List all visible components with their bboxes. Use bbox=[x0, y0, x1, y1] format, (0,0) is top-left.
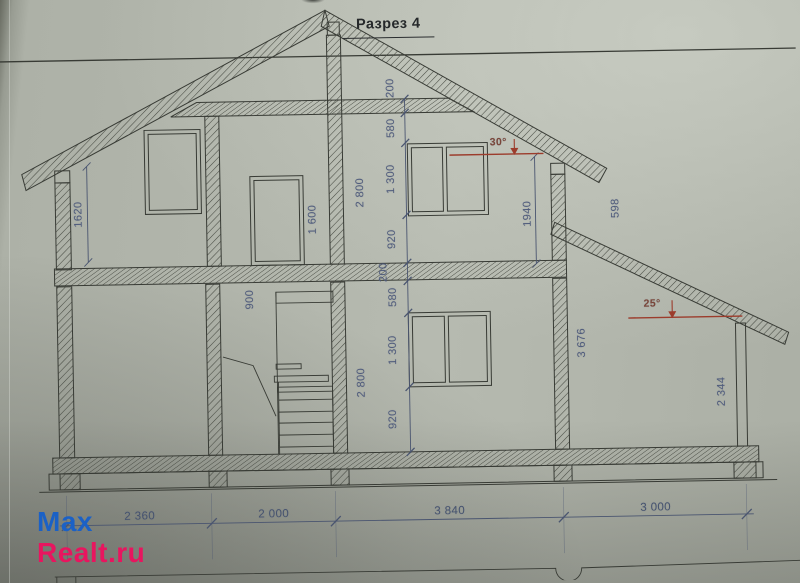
photo-of-section-drawing: Разрез 4 1620 200 580 1 300 920 2 800 20… bbox=[0, 0, 800, 583]
dim-porch-post: 2 344 bbox=[714, 356, 729, 426]
angle-main-roof: 30° bbox=[481, 135, 515, 150]
dim-ground-window: 1 300 bbox=[385, 315, 400, 385]
drawing-title: Разрез 4 bbox=[342, 15, 434, 39]
porch-post bbox=[735, 323, 747, 446]
dim-right-wall: 3 676 bbox=[574, 308, 589, 378]
dimension-lines bbox=[52, 89, 754, 562]
ground-line bbox=[39, 479, 777, 492]
ground-window bbox=[408, 311, 491, 386]
plan-dim-2: 2 000 bbox=[239, 507, 309, 522]
walls bbox=[52, 15, 747, 458]
angle-porch-roof: 25° bbox=[635, 296, 669, 311]
staircase bbox=[222, 291, 336, 455]
collar-beam bbox=[171, 98, 474, 117]
roof bbox=[19, 2, 789, 357]
watermark: Max Realt.ru bbox=[37, 506, 145, 568]
dim-left-knee-wall: 1620 bbox=[71, 179, 86, 249]
attic-right-window bbox=[407, 142, 488, 215]
section-line-art bbox=[0, 0, 800, 583]
floor-slabs bbox=[35, 256, 777, 492]
dim-ground-sill: 920 bbox=[385, 384, 400, 454]
plan-dim-3: 3 840 bbox=[415, 504, 485, 519]
dim-door-height: 1 600 bbox=[305, 184, 320, 254]
dim-right-upper: 1940 bbox=[520, 179, 535, 249]
stair-handrail bbox=[223, 356, 276, 417]
attic-door bbox=[250, 176, 305, 266]
watermark-line1: Max bbox=[37, 506, 145, 537]
dim-roof-overhang: 598 bbox=[608, 173, 623, 243]
dim-attic-height: 2 800 bbox=[353, 158, 368, 228]
attic-left-window bbox=[144, 129, 201, 214]
drawing-sheet: Разрез 4 1620 200 580 1 300 920 2 800 20… bbox=[0, 0, 800, 583]
next-drawing-edge bbox=[55, 560, 800, 583]
dim-stair-rail: 900 bbox=[242, 265, 257, 335]
watermark-line2: Realt.ru bbox=[37, 537, 145, 568]
dim-ground-height: 2 800 bbox=[354, 348, 369, 418]
plan-dim-4: 3 000 bbox=[621, 500, 691, 515]
